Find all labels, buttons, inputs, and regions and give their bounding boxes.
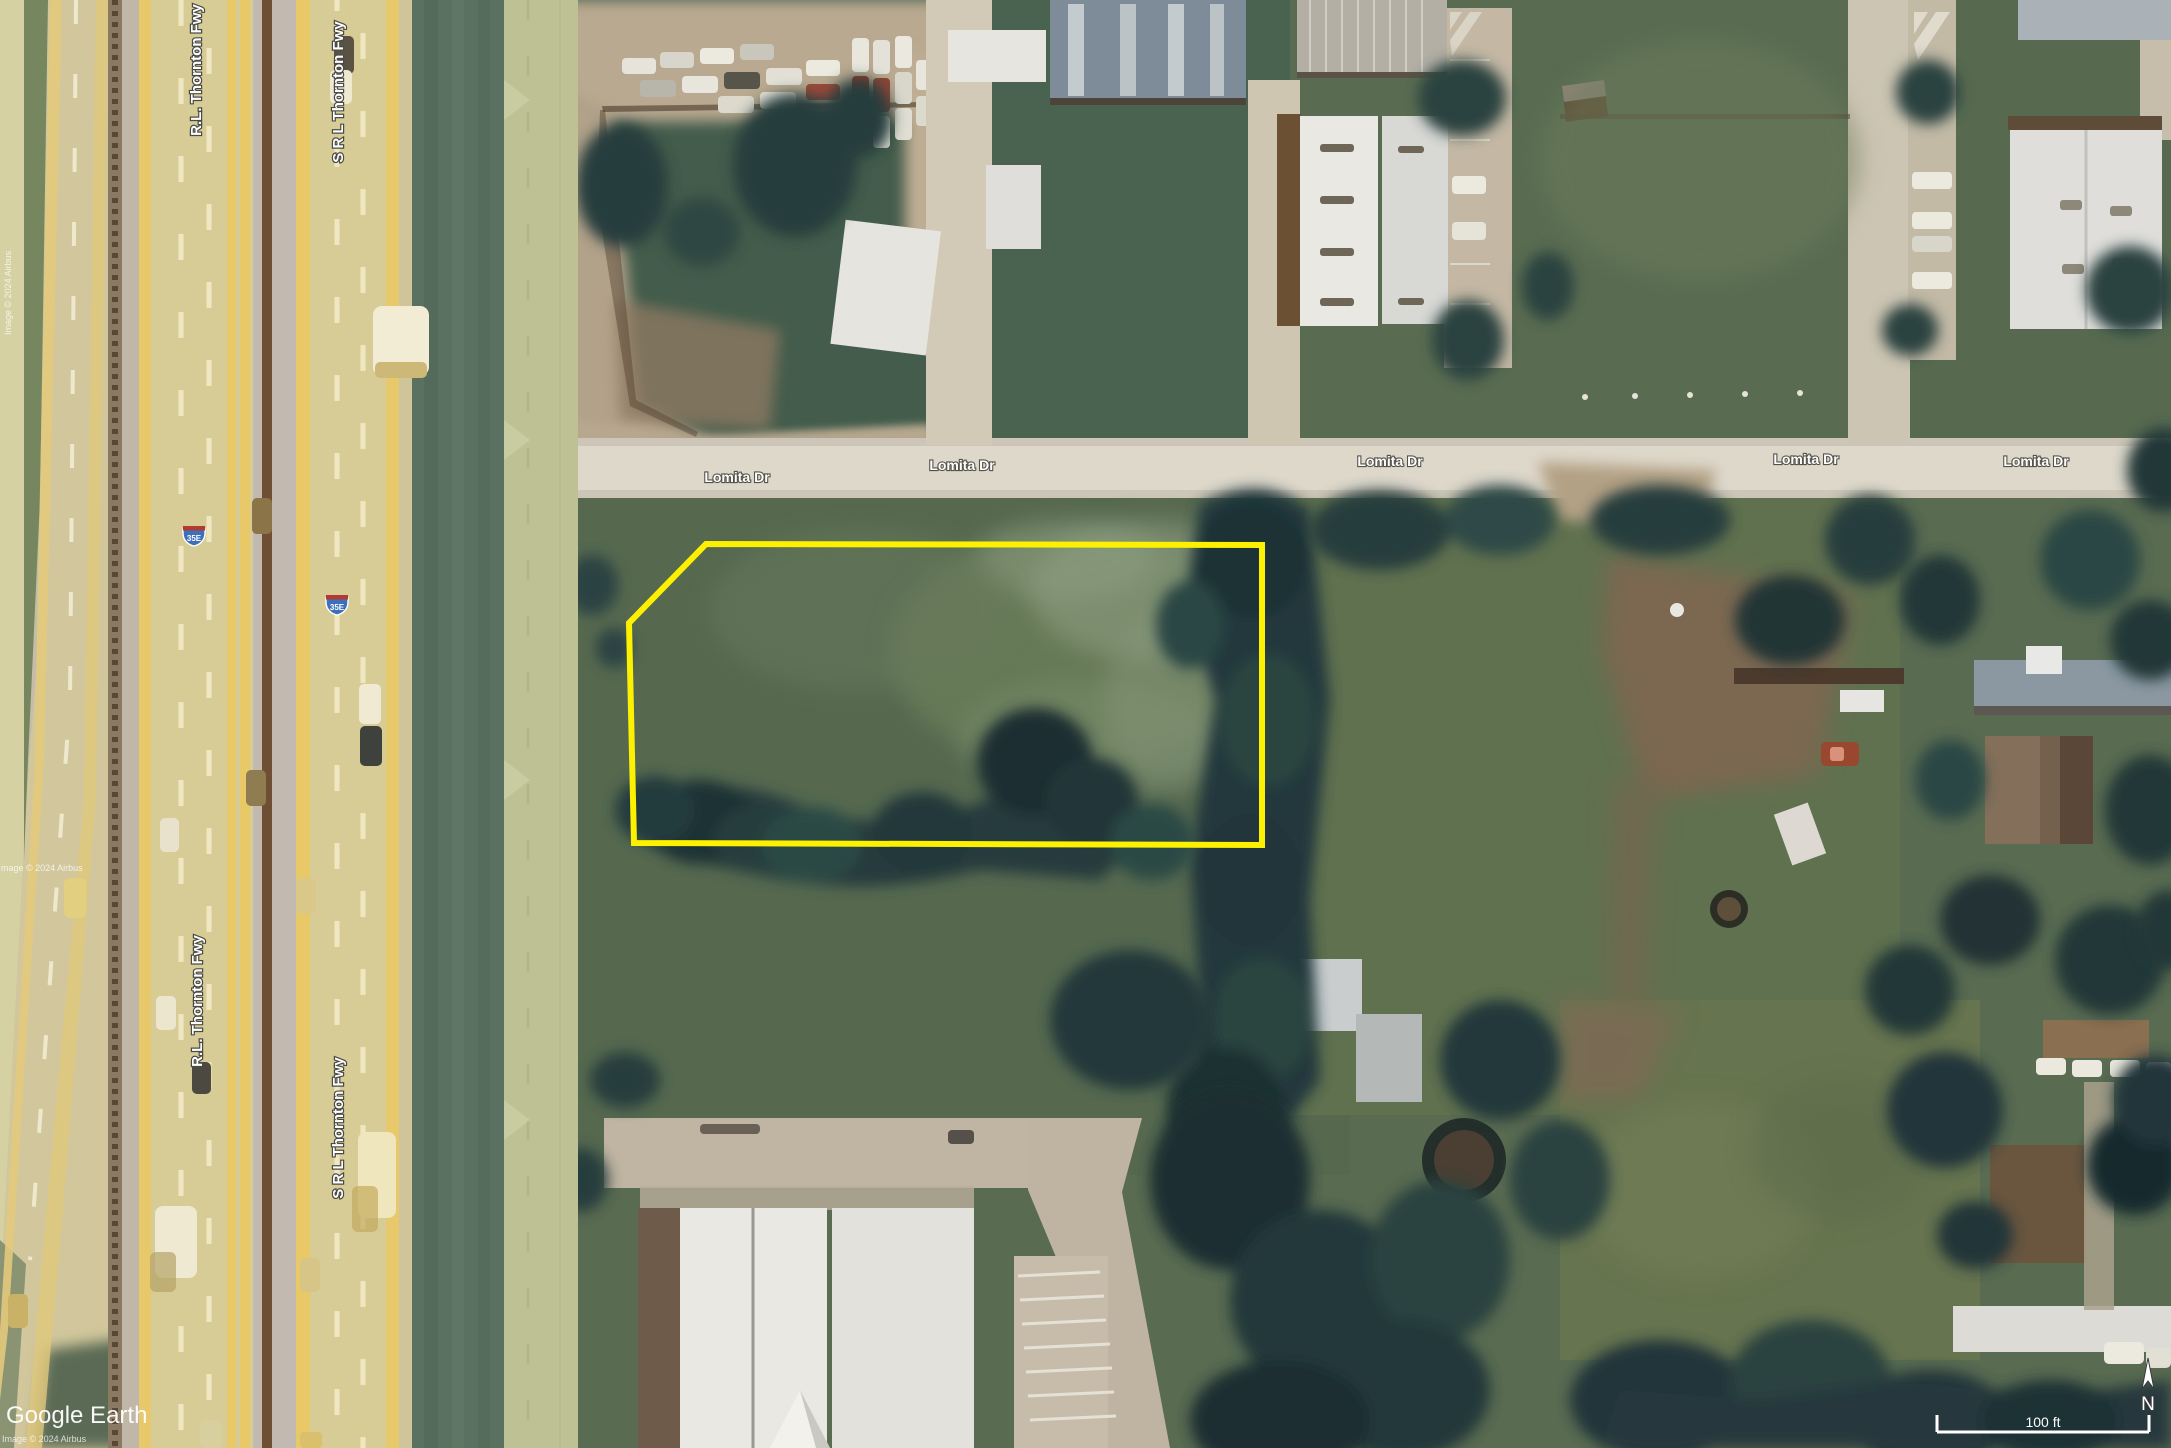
svg-text:mage © 2024 Airbus: mage © 2024 Airbus — [1, 863, 83, 873]
svg-text:Image © 2024 Airbus: Image © 2024 Airbus — [3, 250, 13, 335]
svg-text:S R L Thornton Fwy: S R L Thornton Fwy — [330, 1057, 347, 1199]
svg-text:100 ft: 100 ft — [2025, 1414, 2060, 1430]
svg-text:Lomita Dr: Lomita Dr — [2003, 453, 2069, 469]
svg-text:Lomita Dr: Lomita Dr — [1773, 451, 1839, 467]
svg-text:R.L. Thornton Fwy: R.L. Thornton Fwy — [188, 4, 205, 136]
svg-text:Image © 2024 Airbus: Image © 2024 Airbus — [2, 1434, 87, 1444]
svg-text:N: N — [2141, 1394, 2155, 1415]
svg-text:35E: 35E — [330, 603, 345, 612]
svg-text:S R L Thornton Fwy: S R L Thornton Fwy — [330, 21, 347, 163]
svg-text:R.L. Thornton Fwy: R.L. Thornton Fwy — [189, 935, 206, 1067]
svg-text:Lomita Dr: Lomita Dr — [929, 457, 995, 473]
svg-text:Lomita Dr: Lomita Dr — [704, 469, 770, 485]
svg-text:Lomita Dr: Lomita Dr — [1357, 453, 1423, 469]
svg-text:Google Earth: Google Earth — [6, 1402, 147, 1429]
svg-text:35E: 35E — [187, 534, 202, 543]
